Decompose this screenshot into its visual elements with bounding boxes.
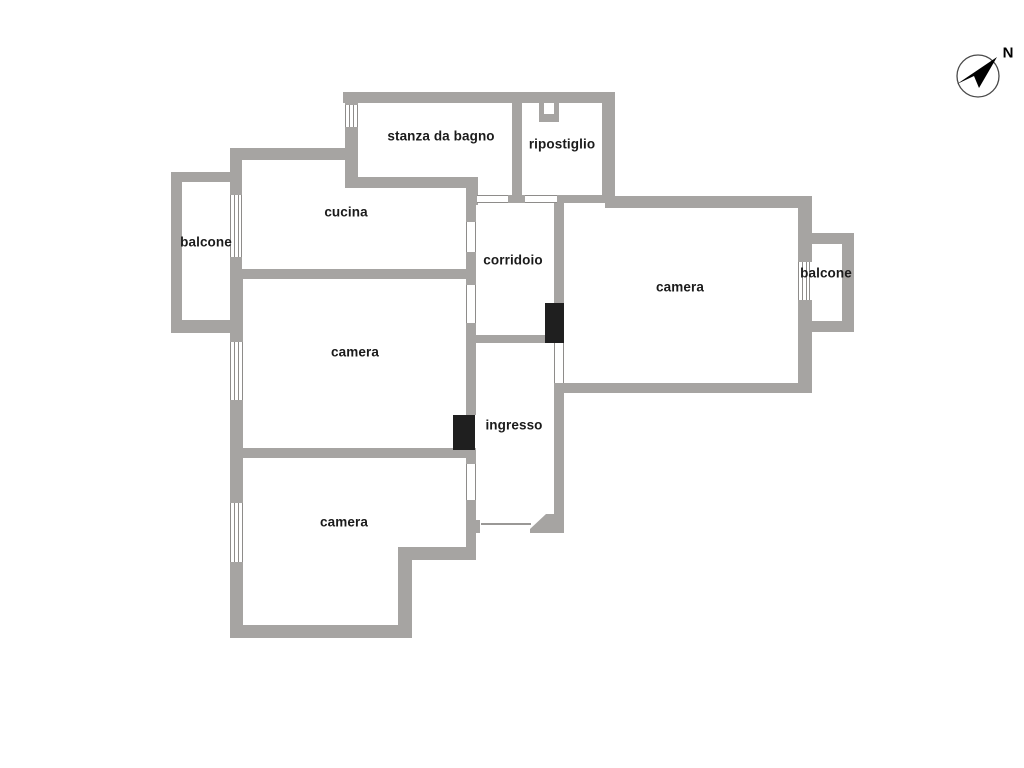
wall-segment [345, 92, 358, 105]
openings-layer [466, 195, 564, 524]
room-label-balcone-left: balcone [180, 235, 232, 250]
room-label-ingresso: ingresso [485, 418, 542, 433]
door-opening-camera-right [554, 343, 564, 383]
wall-segment [466, 458, 476, 464]
wall-segment [466, 203, 476, 222]
wall-segment [230, 148, 242, 195]
door-opening-storage [525, 195, 557, 203]
room-label-camera-right: camera [656, 280, 704, 295]
wall-segment [508, 195, 525, 203]
room-label-camera-bottom: camera [320, 515, 368, 530]
wall-segment [605, 196, 812, 208]
floor-plan-drawing [0, 0, 1024, 768]
wall-segment [554, 203, 564, 305]
wall-segment [602, 92, 615, 203]
door-leaf-corridor [545, 303, 564, 343]
wall-segment [230, 279, 243, 342]
door-opening-camera-middle [466, 285, 476, 323]
wall-segment [472, 335, 545, 343]
walls-layer [171, 92, 854, 638]
wall-segment [466, 252, 476, 285]
wall-segment [398, 547, 476, 560]
wall-segment [466, 520, 480, 533]
floor-plan-page: stanza da bagno ripostiglio cucina balco… [0, 0, 1024, 768]
window-bathroom [345, 105, 358, 127]
wall-segment [398, 547, 412, 638]
wall-segment [842, 233, 854, 332]
door-opening-bathroom [477, 195, 508, 203]
wall-segment [230, 269, 476, 279]
wall-segment [230, 148, 357, 160]
window-camera-middle [230, 342, 243, 400]
door-opening-kitchen [466, 222, 476, 252]
wall-segment [230, 562, 243, 625]
window-camera-bottom [230, 503, 243, 562]
wall-segment [230, 458, 243, 503]
room-label-balcone-right: balcone [800, 266, 852, 281]
wall-segment [230, 625, 412, 638]
compass [957, 55, 999, 97]
wall-segment [343, 92, 615, 103]
duct-notch-inner [544, 103, 554, 114]
wall-segment [798, 300, 812, 393]
wall-segment [810, 321, 854, 332]
room-label-cucina: cucina [324, 205, 367, 220]
wall-segment [554, 383, 812, 393]
wall-segment [230, 448, 476, 458]
room-label-corridoio: corridoio [483, 253, 542, 268]
door-leaf-ingresso [453, 415, 475, 450]
room-label-ripostiglio: ripostiglio [529, 137, 595, 152]
wall-segment [798, 196, 812, 262]
chamfer-corner [530, 514, 564, 533]
wall-segment [466, 343, 476, 415]
room-label-stanza-da-bagno: stanza da bagno [387, 129, 494, 144]
wall-segment [554, 195, 605, 203]
wall-segment [230, 400, 243, 448]
room-label-camera-middle: camera [331, 345, 379, 360]
wall-segment [345, 177, 478, 188]
wall-segment [512, 100, 522, 195]
compass-north-label: N [1003, 45, 1014, 62]
wall-segment [554, 393, 564, 515]
door-opening-camera-bottom [466, 464, 476, 500]
wall-segment [171, 172, 182, 333]
